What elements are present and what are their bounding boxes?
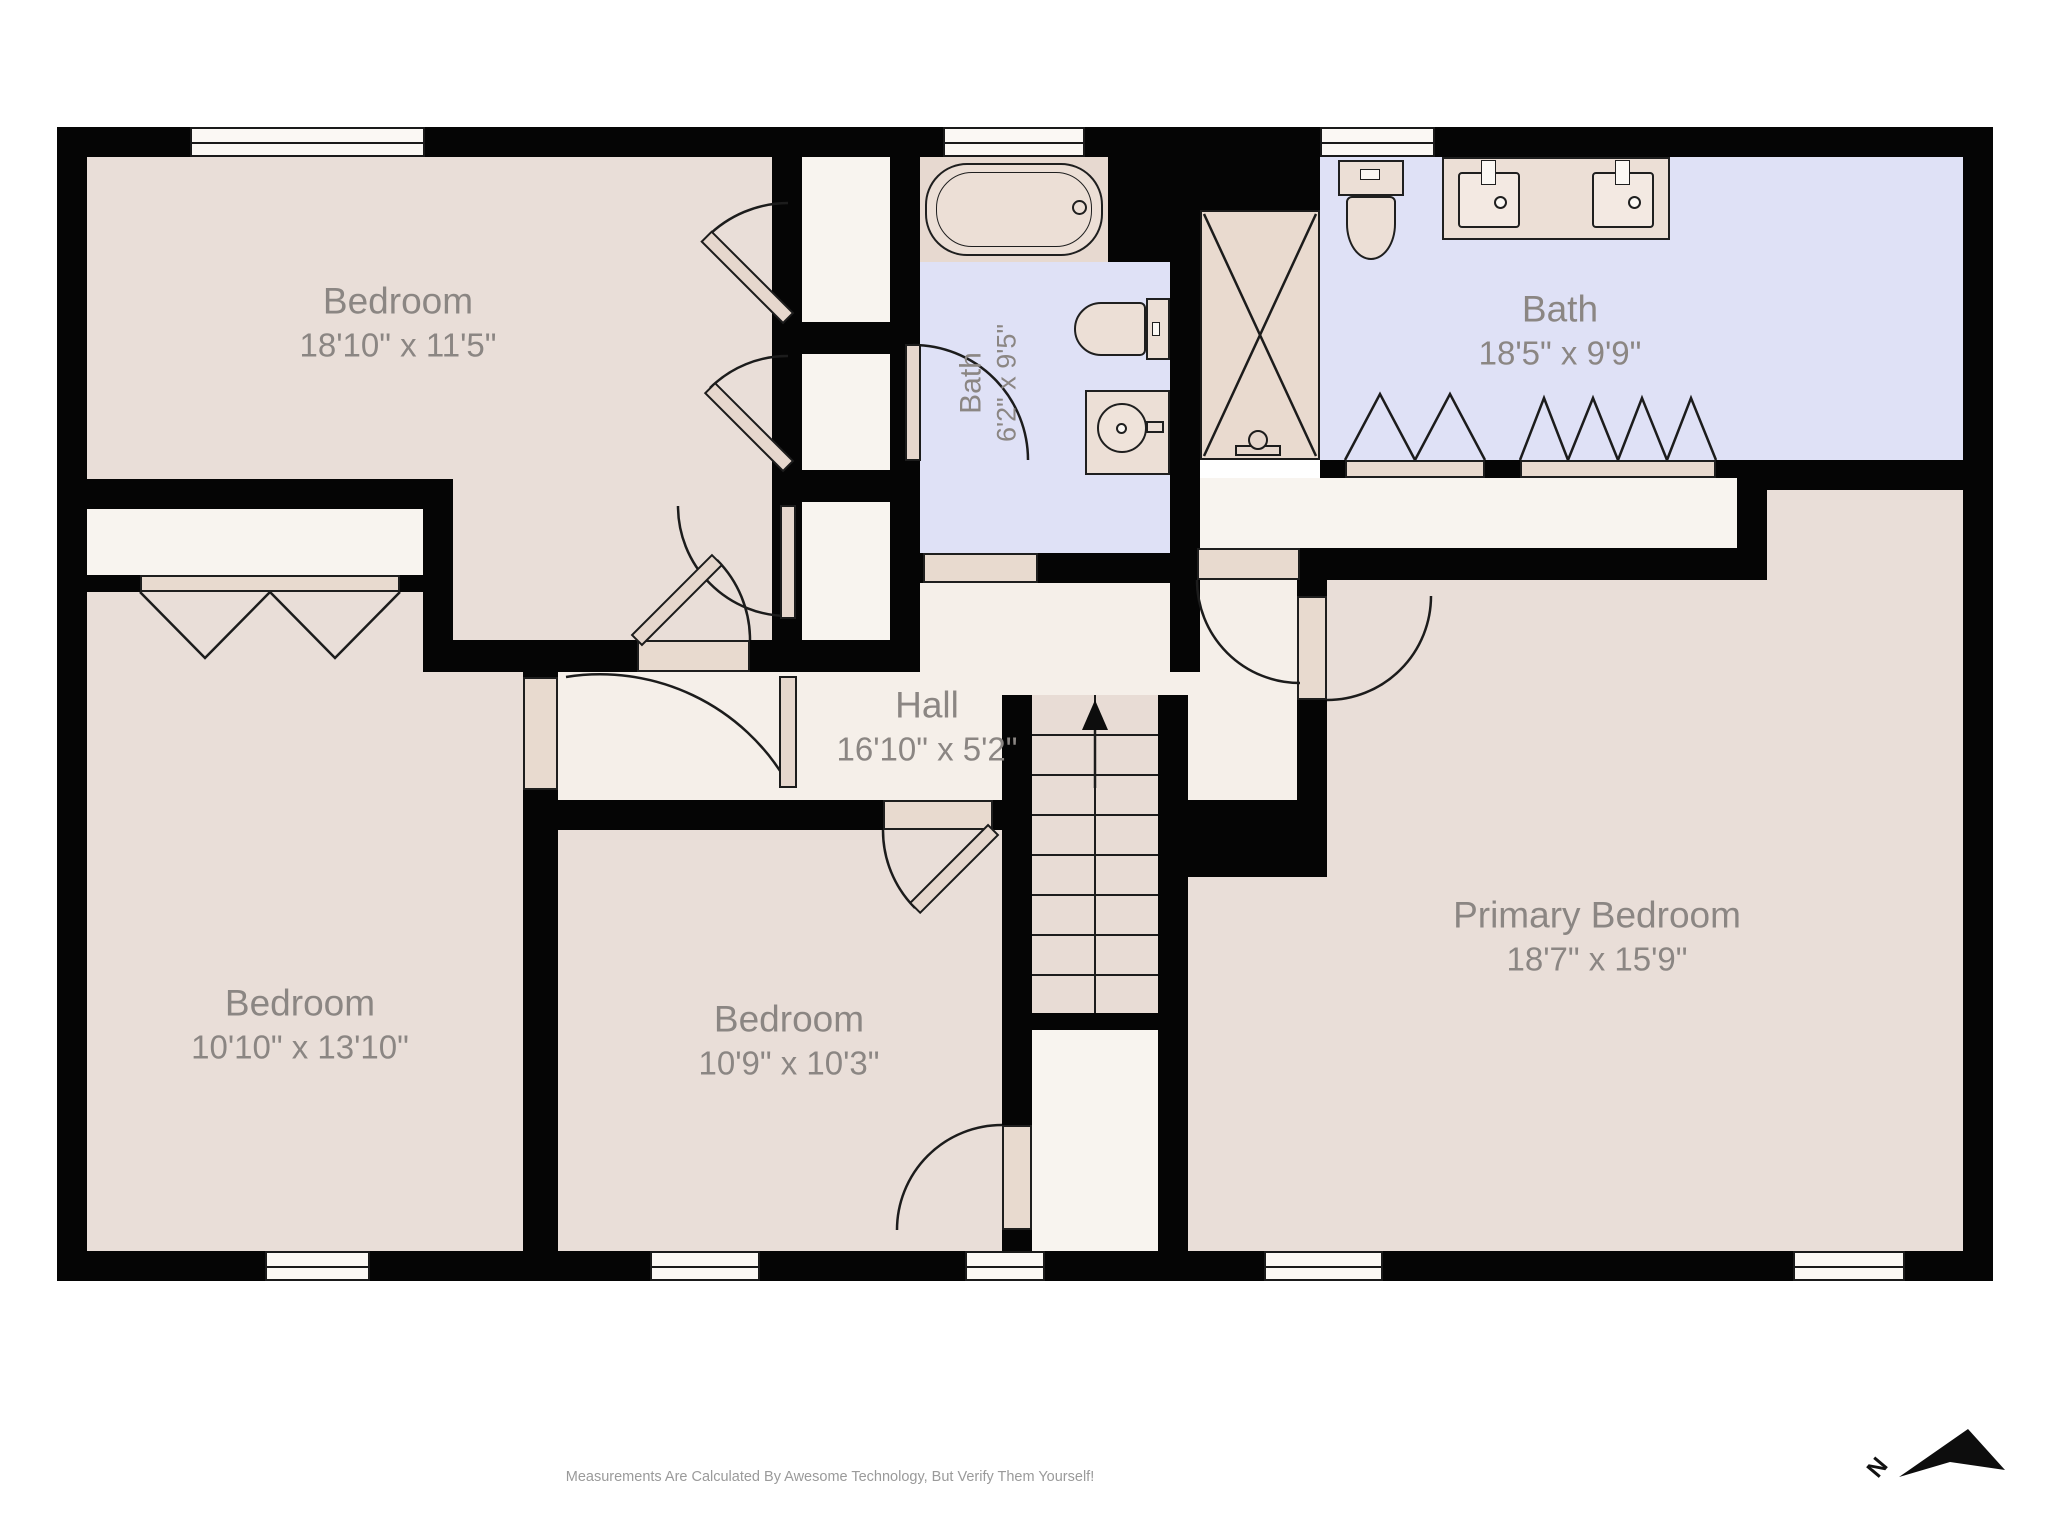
door-swing-arc xyxy=(1197,580,1300,683)
room-name: Bedroom xyxy=(300,278,497,324)
measurement-disclaimer: Measurements Are Calculated By Awesome T… xyxy=(566,1469,1094,1485)
door-swing-arc xyxy=(897,1125,1002,1230)
room-dims: 18'10" x 11'5" xyxy=(300,325,497,366)
room-name: Bath xyxy=(1479,286,1642,332)
door-swing-arc xyxy=(1327,596,1431,700)
door-leaf xyxy=(910,825,998,913)
door-swing-arc xyxy=(717,560,750,640)
plan-linework xyxy=(0,0,2048,1536)
room-name: Bedroom xyxy=(191,980,409,1026)
room-label-bath-small: Bath 6'2" x 9'5" xyxy=(952,324,1023,442)
room-label-bedroom-primary: Primary Bedroom 18'7" x 15'9" xyxy=(1453,892,1741,980)
door-swing-arc xyxy=(883,830,915,908)
door-swing-arc xyxy=(710,356,788,388)
room-label-bath-primary: Bath 18'5" x 9'9" xyxy=(1479,286,1642,374)
door-swing-arc xyxy=(566,674,787,782)
room-label-bedroom-top-left: Bedroom 18'10" x 11'5" xyxy=(300,278,497,366)
room-dims: 6'2" x 9'5" xyxy=(990,324,1024,442)
bifold-closet-doors xyxy=(140,592,400,658)
floor-plan-page: Bedroom 18'10" x 11'5" Bath 6'2" x 9'5" … xyxy=(0,0,2048,1536)
room-name: Bedroom xyxy=(699,996,880,1042)
room-name: Bath xyxy=(952,324,990,442)
room-dims: 18'7" x 15'9" xyxy=(1453,939,1741,980)
shower-head-icon xyxy=(1249,431,1267,449)
room-name: Hall xyxy=(837,682,1018,728)
door-leaf xyxy=(906,345,920,460)
room-label-bedroom-bottom-left: Bedroom 10'10" x 13'10" xyxy=(191,980,409,1068)
stairs-up-arrow xyxy=(1082,700,1108,730)
door-leaf xyxy=(781,506,795,618)
door-swing-arc xyxy=(678,506,788,616)
door-leaf xyxy=(702,232,793,323)
room-label-bedroom-center: Bedroom 10'9" x 10'3" xyxy=(699,996,880,1084)
room-dims: 10'9" x 10'3" xyxy=(699,1043,880,1084)
room-dims: 10'10" x 13'10" xyxy=(191,1027,409,1068)
room-label-hall: Hall 16'10" x 5'2" xyxy=(837,682,1018,770)
room-dims: 18'5" x 9'9" xyxy=(1479,333,1642,374)
bifold-closet-doors xyxy=(1345,394,1485,460)
bifold-closet-doors xyxy=(1520,398,1716,460)
door-swing-arc xyxy=(707,203,788,237)
shower-glass-x xyxy=(1204,214,1316,456)
compass-north-arrow-icon xyxy=(1899,1429,2005,1477)
door-leaf xyxy=(780,677,796,787)
door-leaf xyxy=(632,555,722,645)
door-leaf xyxy=(705,383,793,471)
room-name: Primary Bedroom xyxy=(1453,892,1741,938)
room-dims: 16'10" x 5'2" xyxy=(837,729,1018,770)
